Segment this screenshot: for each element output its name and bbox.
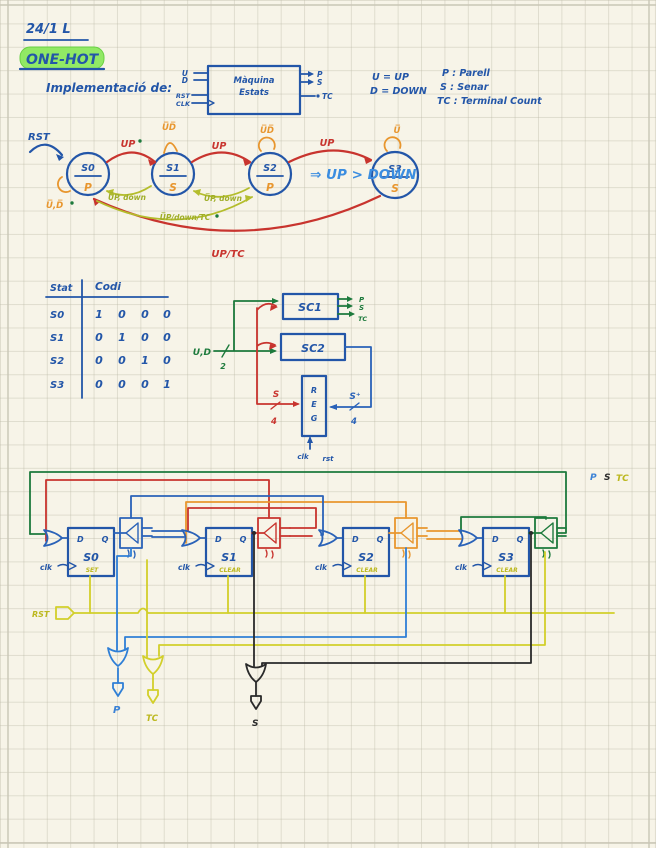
rst-branches (90, 576, 505, 613)
ff-d-label: D (215, 535, 222, 544)
ff-q-label: Q (240, 535, 247, 544)
date-text: 24/1 L (26, 22, 71, 37)
or-gate (319, 530, 337, 546)
ff-mode: CLEAR (219, 567, 241, 574)
row3-state: S3 (50, 380, 64, 391)
or-gate (182, 530, 200, 546)
demux-hooks (266, 550, 273, 558)
or-gate (44, 530, 62, 546)
s-wire-from-s3 (262, 533, 531, 666)
up-arc-1 (107, 153, 155, 163)
demux-stubs (142, 528, 152, 536)
legend-d: D = DOWN (370, 86, 427, 97)
table-row: S1 0 1 0 0 (50, 331, 171, 344)
ud-bus-width: 2 (220, 362, 226, 371)
machine-name-2: Estats (239, 88, 269, 98)
up-arc-2 (192, 153, 250, 163)
blue-bus-s0-to-s1 (152, 531, 184, 537)
subtitle: Implementació de: (46, 81, 172, 95)
state-s2-output: P (266, 182, 274, 194)
row2-b3: 0 (163, 354, 171, 367)
ff-mode: SET (86, 567, 99, 574)
ff-clk-label: clk (40, 563, 53, 572)
ff-clk-squiggle (58, 565, 68, 567)
s-bus-width: 4 (270, 417, 277, 427)
legend-u: U = UP (372, 72, 409, 83)
ff-clk-label: clk (455, 563, 468, 572)
row0-b0: 1 (95, 308, 103, 321)
flipflop-s3: D Q S3 CLEAR clk (455, 518, 566, 576)
tc-or-gate (143, 656, 163, 674)
up-label-3: UP (320, 138, 335, 149)
annotation-tc: TC (616, 474, 629, 484)
s-buffer (251, 696, 261, 709)
ff-name: S3 (498, 551, 514, 564)
sc2-label: SC2 (301, 342, 325, 355)
state-s1-output: S (169, 182, 177, 194)
down-arc-2-head (193, 189, 201, 196)
self-loop-s1 (164, 143, 177, 153)
ff-q-label: Q (517, 535, 524, 544)
orange-into-s3 (427, 531, 461, 539)
reset-arrow (30, 145, 62, 155)
rst-wire (74, 609, 614, 614)
demux-hooks (543, 550, 550, 558)
s-or-gate (246, 664, 266, 682)
table-col-stat: Stat (50, 283, 73, 294)
flipflop-s1: D Q S1 CLEAR clk (178, 518, 290, 576)
row2-b2: 1 (141, 354, 149, 367)
self-loop-s3-label: U̅ (394, 124, 401, 136)
row1-b3: 0 (163, 331, 171, 344)
state-s3-output: S (391, 183, 399, 195)
p-output-label: P (113, 705, 121, 716)
ff-name: S1 (221, 551, 237, 564)
tc-buffer (148, 690, 158, 703)
ff-d-label: D (352, 535, 359, 544)
state-s0-name: S0 (81, 163, 95, 174)
row2-b1: 0 (118, 354, 126, 367)
row1-b1: 1 (118, 331, 126, 344)
ff-clk-wedge (483, 562, 491, 570)
row3-b2: 0 (141, 378, 149, 391)
header: 24/1 L ONE-HOT Implementació de: (20, 22, 172, 95)
demux-triangle (264, 523, 276, 543)
s-output-label: S (252, 719, 258, 729)
row2-b0: 0 (95, 354, 103, 367)
row0-b1: 0 (118, 308, 126, 321)
rst-driver (56, 607, 74, 619)
conclusion-note: ⇒ UP > DOWN (310, 167, 417, 183)
row2-state: S2 (50, 356, 64, 367)
ud-input-label: U,D (193, 348, 212, 358)
truth-table: Stat Codi S0 1 0 0 0 S1 0 1 0 0 S2 0 0 1… (46, 280, 171, 398)
page-edges (0, 0, 656, 848)
ff-clk-squiggle (333, 565, 343, 567)
reg-letter-g: G (311, 414, 318, 423)
demux-triangle (401, 523, 413, 543)
reg-letter-e: E (311, 400, 317, 409)
s-bus-label: S (273, 390, 279, 400)
tc-output-net: TC (143, 552, 545, 724)
annotation-dot-2 (70, 201, 73, 204)
flipflop-s0: D Q S0 SET clk (40, 518, 152, 576)
flipflop-s2: D Q S2 CLEAR clk (315, 518, 427, 576)
green-bus (30, 472, 566, 534)
green-loop-s3 (461, 517, 546, 533)
row0-state: S0 (50, 310, 64, 321)
demux-stubs (557, 528, 566, 536)
circuit-output-annotations: P S TC (590, 473, 629, 484)
table-row: S3 0 0 0 1 (50, 378, 171, 391)
down-label-1: U̅P, down (108, 193, 146, 202)
ff-clk-squiggle (196, 565, 206, 567)
table-row: S2 0 0 1 0 (50, 354, 171, 367)
splus-width: 4 (350, 417, 357, 427)
legend-tc: TC : Terminal Count (437, 96, 542, 107)
row3-b3: 1 (163, 378, 171, 391)
splus-arrowhead (329, 404, 337, 410)
legend-s: S : Senar (440, 82, 490, 93)
ff-clk-wedge (206, 562, 214, 570)
row1-b2: 0 (141, 331, 149, 344)
annotation-s: S (604, 473, 610, 483)
machine-output-tc: TC (322, 92, 333, 101)
legend-p: P : Parell (442, 68, 491, 79)
row3-b0: 0 (95, 378, 103, 391)
ff-q-label: Q (377, 535, 384, 544)
machine-output-arrowheads (308, 71, 314, 85)
splus-label: S⁺ (349, 392, 360, 402)
machine-input-d: D (182, 76, 188, 85)
ff-clk-label: clk (178, 563, 191, 572)
ff-mode: CLEAR (356, 567, 378, 574)
machine-input-rst: RST (176, 92, 191, 100)
state-s0-output: P (84, 182, 92, 194)
row1-state: S1 (50, 333, 64, 344)
ff-d-label: D (77, 535, 84, 544)
reg-rst-label: rst (323, 455, 335, 463)
down-arc-3-head (245, 195, 253, 202)
ff-name: S0 (83, 551, 99, 564)
block-diagram: SC1 SC2 R E G U,D 2 S 4 P S TC S⁺ 4 clk … (193, 294, 371, 463)
ff-name: S2 (358, 551, 374, 564)
ff-clk-wedge (68, 562, 76, 570)
sc1-out-s: S (359, 304, 364, 312)
ff-q-label: Q (102, 535, 109, 544)
page-title: ONE-HOT (26, 52, 100, 68)
self-loop-s2-label: U̅D̅ (260, 124, 274, 136)
ff-clk-squiggle (473, 565, 483, 567)
ff-clk-label: clk (315, 563, 328, 572)
self-loop-s1-label: U̅D̅ (162, 121, 176, 133)
ff-clk-wedge (343, 562, 351, 570)
annotation-dot-1 (138, 139, 141, 142)
self-loop-s3 (385, 137, 401, 151)
table-col-codi: Codi (95, 281, 121, 293)
s-bus-tick (271, 402, 280, 409)
ff-mode: CLEAR (496, 567, 518, 574)
machine-block: Màquina Estats U D RST CLK P S TC (176, 66, 333, 114)
handwritten-notes-canvas: 24/1 L ONE-HOT Implementació de: Màquina… (0, 0, 656, 848)
machine-tc-dot (316, 94, 319, 97)
row0-b3: 0 (163, 308, 171, 321)
machine-output-wires (300, 74, 315, 96)
row3-b1: 0 (118, 378, 126, 391)
annotation-p: P (590, 473, 597, 483)
machine-output-s: S (317, 78, 322, 87)
demux-triangle (126, 523, 138, 543)
demux-stubs (417, 528, 427, 536)
row1-b0: 0 (95, 331, 103, 344)
up-label-1: UP (121, 139, 136, 150)
row0-b2: 0 (141, 308, 149, 321)
state-s1-name: S1 (166, 163, 179, 174)
machine-name-1: Màquina (233, 76, 274, 86)
reset-rail: RST (32, 576, 614, 619)
wrap-up-label: UP/TC (211, 249, 245, 260)
self-loop-s0-label: U̅,D̅ (46, 199, 63, 211)
legend: U = UP D = DOWN P : Parell S : Senar TC … (370, 68, 542, 107)
state-s2-name: S2 (263, 163, 277, 174)
table-row: S0 1 0 0 0 (50, 308, 171, 321)
notebook-page: 24/1 L ONE-HOT Implementació de: Màquina… (0, 0, 656, 848)
up-label-2: UP (212, 141, 227, 152)
reset-label: RST (28, 132, 51, 143)
sc1-label: SC1 (298, 301, 322, 314)
sc1-out-tc: TC (358, 315, 367, 323)
demux-triangle (541, 523, 553, 543)
down-label-2: U̅P, down (204, 194, 242, 203)
annotation-dot-3 (215, 214, 218, 217)
rst-label: RST (32, 610, 50, 619)
or-gate (459, 530, 477, 546)
tc-output-label: TC (146, 714, 159, 724)
down-label-3: U̅P/down/TC (160, 213, 211, 222)
reg-letter-r: R (311, 386, 317, 395)
gate-circuit: D Q S0 SET clk D Q S1 CLEAR clk (30, 472, 629, 729)
p-buffer (113, 683, 123, 696)
reg-clk-label: clk (297, 453, 310, 461)
p-or-gate (108, 648, 128, 666)
sc1-out-p: P (359, 296, 365, 304)
machine-input-clk: CLK (176, 100, 191, 108)
machine-input-wires (192, 73, 208, 103)
demux-stubs (280, 528, 290, 536)
state-diagram: RST S0 S1 S2 S3 P S P S UP UP UP UP/TC U… (28, 121, 418, 260)
self-loop-s2 (259, 137, 275, 151)
ff-d-label: D (492, 535, 499, 544)
p-wire-from-s0 (117, 548, 131, 650)
up-arc-3 (289, 150, 371, 162)
